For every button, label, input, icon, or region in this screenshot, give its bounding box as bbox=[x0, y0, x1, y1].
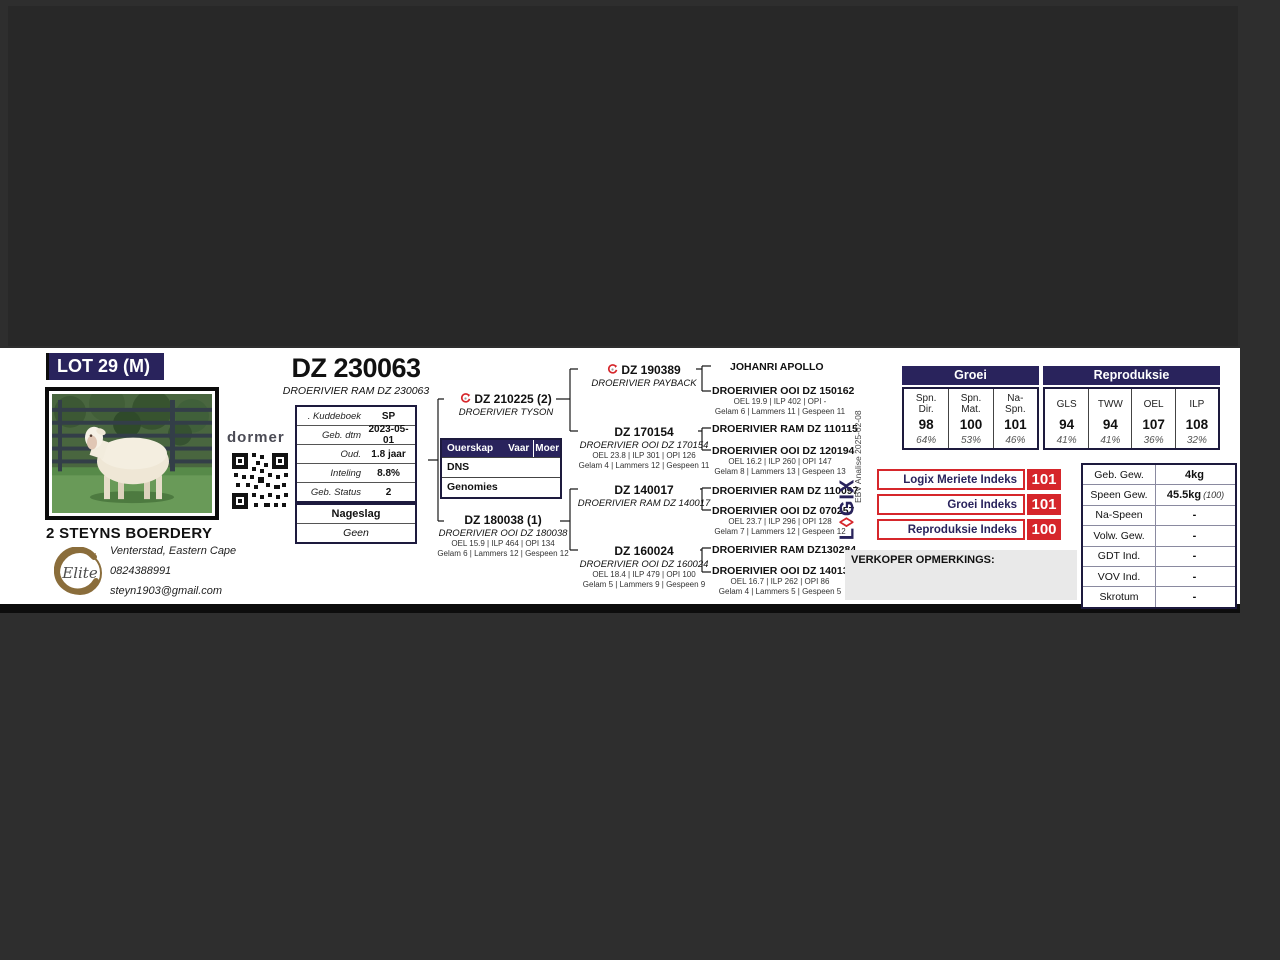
gen3-name: DROERIVIER OOI DZ 120194 bbox=[712, 445, 848, 457]
breeder-email: steyn1903@gmail.com bbox=[110, 585, 222, 597]
lot-number-banner: LOT 29 (M) bbox=[46, 353, 164, 380]
index-value: 101 bbox=[1027, 494, 1061, 515]
reproduksie-header: Reproduksie bbox=[1043, 366, 1220, 385]
ebv-cell: OEL 107 36% bbox=[1131, 389, 1174, 448]
ebv-accuracy: 46% bbox=[994, 435, 1037, 446]
animal-id-title: DZ 230063 bbox=[276, 353, 436, 384]
logix-animal-icon bbox=[607, 364, 618, 375]
ebv-accuracy: 41% bbox=[1045, 435, 1088, 446]
pedigree-gen3-block: DROERIVIER RAM DZ 110115 bbox=[712, 423, 848, 435]
groei-header: Groei bbox=[902, 366, 1039, 385]
info-value: SP bbox=[365, 411, 412, 422]
animal-photo bbox=[45, 387, 219, 520]
ebv-trait-label: Spn.Mat. bbox=[949, 392, 992, 416]
dormer-breed-logo: dormer bbox=[227, 429, 285, 446]
weights-value: - bbox=[1156, 591, 1235, 603]
weights-value: - bbox=[1156, 571, 1235, 583]
info-value: 2 bbox=[365, 487, 412, 498]
ebv-cell: Na-Spn. 101 46% bbox=[993, 389, 1037, 448]
ebv-value: 100 bbox=[949, 417, 992, 432]
info-label: Geb. Status bbox=[300, 487, 365, 498]
pedigree-sire-block: DZ 210225 (2) DROERIVIER TYSON bbox=[440, 392, 572, 418]
weights-row: Skrotum- bbox=[1083, 586, 1235, 606]
nageslag-value: Geen bbox=[297, 524, 415, 542]
sire-id-row: DZ 210225 (2) bbox=[440, 392, 572, 406]
weights-value: - bbox=[1156, 550, 1235, 562]
gen2-name: DROERIVIER RAM DZ 140017 bbox=[568, 498, 720, 509]
dam-stats: Gelam 6 | Lammers 12 | Gespeen 12 bbox=[437, 549, 569, 559]
catalog-card: LOT 29 (M) bbox=[0, 348, 1240, 613]
ebv-accuracy: 64% bbox=[904, 435, 948, 446]
sheep-photo-illustration bbox=[52, 394, 212, 513]
info-row: Geb. Status2 bbox=[297, 482, 415, 501]
ebv-trait-label: TWW bbox=[1089, 392, 1131, 416]
ebv-value: 108 bbox=[1176, 417, 1218, 432]
gen2-stats: OEL 18.4 | ILP 479 | OPI 100 bbox=[568, 570, 720, 580]
ebv-cell: TWW 94 41% bbox=[1088, 389, 1131, 448]
info-label: Geb. dtm bbox=[300, 430, 365, 441]
info-value: 8.8% bbox=[365, 468, 412, 479]
info-value: 2023-05-01 bbox=[365, 424, 412, 446]
weights-row: Na-Speen- bbox=[1083, 505, 1235, 525]
pedigree-gen3-block: DROERIVIER RAM DZ 110097 bbox=[712, 485, 848, 497]
qr-code bbox=[230, 451, 290, 513]
ebv-accuracy: 32% bbox=[1176, 435, 1218, 446]
parentage-verification-table: Ouerskap Vaar Moer DNS Genomies bbox=[440, 438, 562, 499]
info-label: Inteling bbox=[300, 468, 365, 479]
ebv-trait-label: OEL bbox=[1132, 392, 1174, 416]
ebv-accuracy: 41% bbox=[1089, 435, 1131, 446]
gen3-name: DROERIVIER OOI DZ 070257 bbox=[712, 505, 848, 517]
ebv-value: 101 bbox=[994, 417, 1037, 432]
gen3-stats: Gelam 4 | Lammers 5 | Gespeen 5 bbox=[712, 587, 848, 597]
gen2-id: DZ 170154 bbox=[568, 425, 720, 439]
animal-info-table: . KuddeboekSP Geb. dtm2023-05-01 Oud.1.8… bbox=[295, 405, 417, 503]
gen2-stats: Gelam 4 | Lammers 12 | Gespeen 11 bbox=[568, 461, 720, 471]
seller-remarks-box: VERKOPER OPMERKINGS: bbox=[845, 550, 1077, 600]
parentage-header-row: Ouerskap Vaar Moer bbox=[442, 440, 560, 457]
weights-value: 45.5kg(100) bbox=[1156, 489, 1235, 501]
pedigree-gen3-block: DROERIVIER OOI DZ 150162 OEL 19.9 | ILP … bbox=[712, 385, 848, 417]
weights-label: GDT Ind. bbox=[1083, 547, 1156, 566]
index-label: Logix Meriete Indeks bbox=[877, 469, 1025, 490]
parentage-col-ouerskap: Ouerskap bbox=[442, 440, 504, 457]
gen3-name: JOHANRI APOLLO bbox=[730, 361, 866, 373]
weights-label: Speen Gew. bbox=[1083, 485, 1156, 504]
sire-name: DROERIVIER TYSON bbox=[440, 407, 572, 418]
ebv-trait-label: GLS bbox=[1045, 392, 1088, 416]
nageslag-header: Nageslag bbox=[297, 505, 415, 524]
ebv-trait-label: Na-Spn. bbox=[994, 392, 1037, 416]
nageslag-box: Nageslag Geen bbox=[295, 503, 417, 544]
weights-row: VOV Ind.- bbox=[1083, 566, 1235, 586]
weights-row: Geb. Gew.4kg bbox=[1083, 465, 1235, 484]
gen3-name: DROERIVIER RAM DZ 110115 bbox=[712, 423, 848, 435]
info-row: Inteling8.8% bbox=[297, 463, 415, 482]
pedigree-gen2-block: DZ 140017 DROERIVIER RAM DZ 140017 bbox=[568, 483, 720, 509]
sire-id: DZ 210225 (2) bbox=[474, 392, 551, 406]
gen3-stats: Gelam 7 | Lammers 12 | Gespeen 12 bbox=[712, 527, 848, 537]
svg-text:Elite: Elite bbox=[61, 564, 98, 582]
info-value: 1.8 jaar bbox=[365, 449, 412, 460]
ebv-cell: Spn.Mat. 100 53% bbox=[948, 389, 992, 448]
pedigree-gen3-block: DROERIVIER OOI DZ 070257 OEL 23.7 | ILP … bbox=[712, 505, 848, 537]
gen2-stats: OEL 23.8 | ILP 301 | OPI 126 bbox=[568, 451, 720, 461]
gen2-name: DROERIVIER OOI DZ 170154 bbox=[568, 440, 720, 451]
breeder-phone: 0824388991 bbox=[110, 565, 171, 577]
ebv-accuracy: 36% bbox=[1132, 435, 1174, 446]
logix-animal-icon bbox=[460, 393, 471, 404]
parentage-col-moer: Moer bbox=[533, 440, 560, 457]
weights-value: 4kg bbox=[1156, 469, 1235, 481]
info-label: . Kuddeboek bbox=[300, 411, 365, 422]
gen2-stats: Gelam 5 | Lammers 9 | Gespeen 9 bbox=[568, 580, 720, 590]
ebv-cell: GLS 94 41% bbox=[1045, 389, 1088, 448]
weights-note: (100) bbox=[1203, 490, 1224, 500]
gen3-name: DROERIVIER OOI DZ 150162 bbox=[712, 385, 848, 397]
ebv-accuracy: 53% bbox=[949, 435, 992, 446]
info-row: Oud.1.8 jaar bbox=[297, 444, 415, 463]
gen3-name: DROERIVIER OOI DZ 140130 bbox=[712, 565, 848, 577]
ebv-trait-label: Spn.Dir. bbox=[904, 392, 948, 416]
ebv-value: 94 bbox=[1089, 417, 1131, 432]
pedigree-gen3-block: DROERIVIER OOI DZ 140130 OEL 16.7 | ILP … bbox=[712, 565, 848, 597]
index-value: 100 bbox=[1027, 519, 1061, 540]
ebv-cell: ILP 108 32% bbox=[1175, 389, 1218, 448]
weights-label: Skrotum bbox=[1083, 587, 1156, 606]
gen3-stats: OEL 16.7 | ILP 262 | OPI 86 bbox=[712, 577, 848, 587]
gen2-name: DROERIVIER OOI DZ 160024 bbox=[568, 559, 720, 570]
weights-value: - bbox=[1156, 530, 1235, 542]
gen3-name: DROERIVIER RAM DZ 110097 bbox=[712, 485, 848, 497]
ebv-value: 98 bbox=[904, 417, 948, 432]
pedigree-gen2-block: DZ 170154 DROERIVIER OOI DZ 170154 OEL 2… bbox=[568, 425, 720, 471]
dam-id: DZ 180038 (1) bbox=[437, 513, 569, 527]
ebv-analysis-date: EBV Analise 2025-02-08 bbox=[853, 413, 863, 503]
pedigree-gen2-block: DZ 160024 DROERIVIER OOI DZ 160024 OEL 1… bbox=[568, 544, 720, 590]
weights-value: - bbox=[1156, 509, 1235, 521]
info-label: Oud. bbox=[300, 449, 365, 460]
seller-remarks-label: VERKOPER OPMERKINGS: bbox=[851, 554, 995, 566]
breeder-name: 2 STEYNS BOERDERY bbox=[46, 525, 212, 542]
pedigree-dam-block: DZ 180038 (1) DROERIVIER OOI DZ 180038 O… bbox=[437, 513, 569, 559]
gen2-id-row: DZ 190389 bbox=[568, 363, 720, 377]
gen3-stats: Gelam 6 | Lammers 11 | Gespeen 11 bbox=[712, 407, 848, 417]
gen3-stats: OEL 16.2 | ILP 260 | OPI 147 bbox=[712, 457, 848, 467]
parentage-row-genomies: Genomies bbox=[442, 477, 560, 497]
gen2-name: DROERIVIER PAYBACK bbox=[568, 378, 720, 389]
pedigree-gen3-block: JOHANRI APOLLO bbox=[730, 361, 866, 373]
info-row: Geb. dtm2023-05-01 bbox=[297, 425, 415, 444]
gen2-id: DZ 140017 bbox=[568, 483, 720, 497]
ebv-trait-label: ILP bbox=[1176, 392, 1218, 416]
dam-stats: OEL 15.9 | ILP 464 | OPI 134 bbox=[437, 539, 569, 549]
info-row: . KuddeboekSP bbox=[297, 407, 415, 425]
gen3-stats: OEL 19.9 | ILP 402 | OPI - bbox=[712, 397, 848, 407]
pedigree-gen2-block: DZ 190389 DROERIVIER PAYBACK bbox=[568, 363, 720, 389]
ebv-value: 94 bbox=[1045, 417, 1088, 432]
weights-label: Na-Speen bbox=[1083, 506, 1156, 525]
index-value: 101 bbox=[1027, 469, 1061, 490]
weights-label: VOV Ind. bbox=[1083, 567, 1156, 586]
index-label: Reproduksie Indeks bbox=[877, 519, 1025, 540]
animal-name-subtitle: DROERIVIER RAM DZ 230063 bbox=[276, 385, 436, 397]
pedigree-gen3-block: DROERIVIER RAM DZ130284 bbox=[712, 544, 848, 556]
viewer-dark-background bbox=[8, 6, 1238, 346]
pedigree-gen3-block: DROERIVIER OOI DZ 120194 OEL 16.2 | ILP … bbox=[712, 445, 848, 477]
breeder-location: Venterstad, Eastern Cape bbox=[110, 545, 236, 557]
index-label: Groei Indeks bbox=[877, 494, 1025, 515]
gen3-stats: OEL 23.7 | ILP 296 | OPI 128 bbox=[712, 517, 848, 527]
logix-diamond-icon: ◊ bbox=[836, 516, 858, 527]
weights-label: Volw. Gew. bbox=[1083, 526, 1156, 545]
weights-row: GDT Ind.- bbox=[1083, 546, 1235, 566]
parentage-col-vaar: Vaar bbox=[504, 440, 533, 457]
gen3-name: DROERIVIER RAM DZ130284 bbox=[712, 544, 848, 556]
weights-label: Geb. Gew. bbox=[1083, 465, 1156, 484]
groei-ebv-table: Spn.Dir. 98 64% Spn.Mat. 100 53% Na-Spn.… bbox=[902, 387, 1039, 450]
animal-title-block: DZ 230063 DROERIVIER RAM DZ 230063 bbox=[276, 353, 436, 397]
gen3-stats: Gelam 8 | Lammers 13 | Gespeen 13 bbox=[712, 467, 848, 477]
weights-row: Volw. Gew.- bbox=[1083, 525, 1235, 545]
gen2-id: DZ 160024 bbox=[568, 544, 720, 558]
weights-row: Speen Gew.45.5kg(100) bbox=[1083, 484, 1235, 504]
elite-stud-logo: Elite bbox=[54, 547, 106, 599]
weights-table: Geb. Gew.4kg Speen Gew.45.5kg(100) Na-Sp… bbox=[1081, 463, 1237, 609]
gen2-id: DZ 190389 bbox=[621, 363, 680, 377]
ebv-cell: Spn.Dir. 98 64% bbox=[904, 389, 948, 448]
parentage-row-dns: DNS bbox=[442, 457, 560, 477]
reproduksie-ebv-table: GLS 94 41% TWW 94 41% OEL 107 36% ILP 10… bbox=[1043, 387, 1220, 450]
ebv-value: 107 bbox=[1132, 417, 1174, 432]
dam-name: DROERIVIER OOI DZ 180038 bbox=[437, 528, 569, 539]
